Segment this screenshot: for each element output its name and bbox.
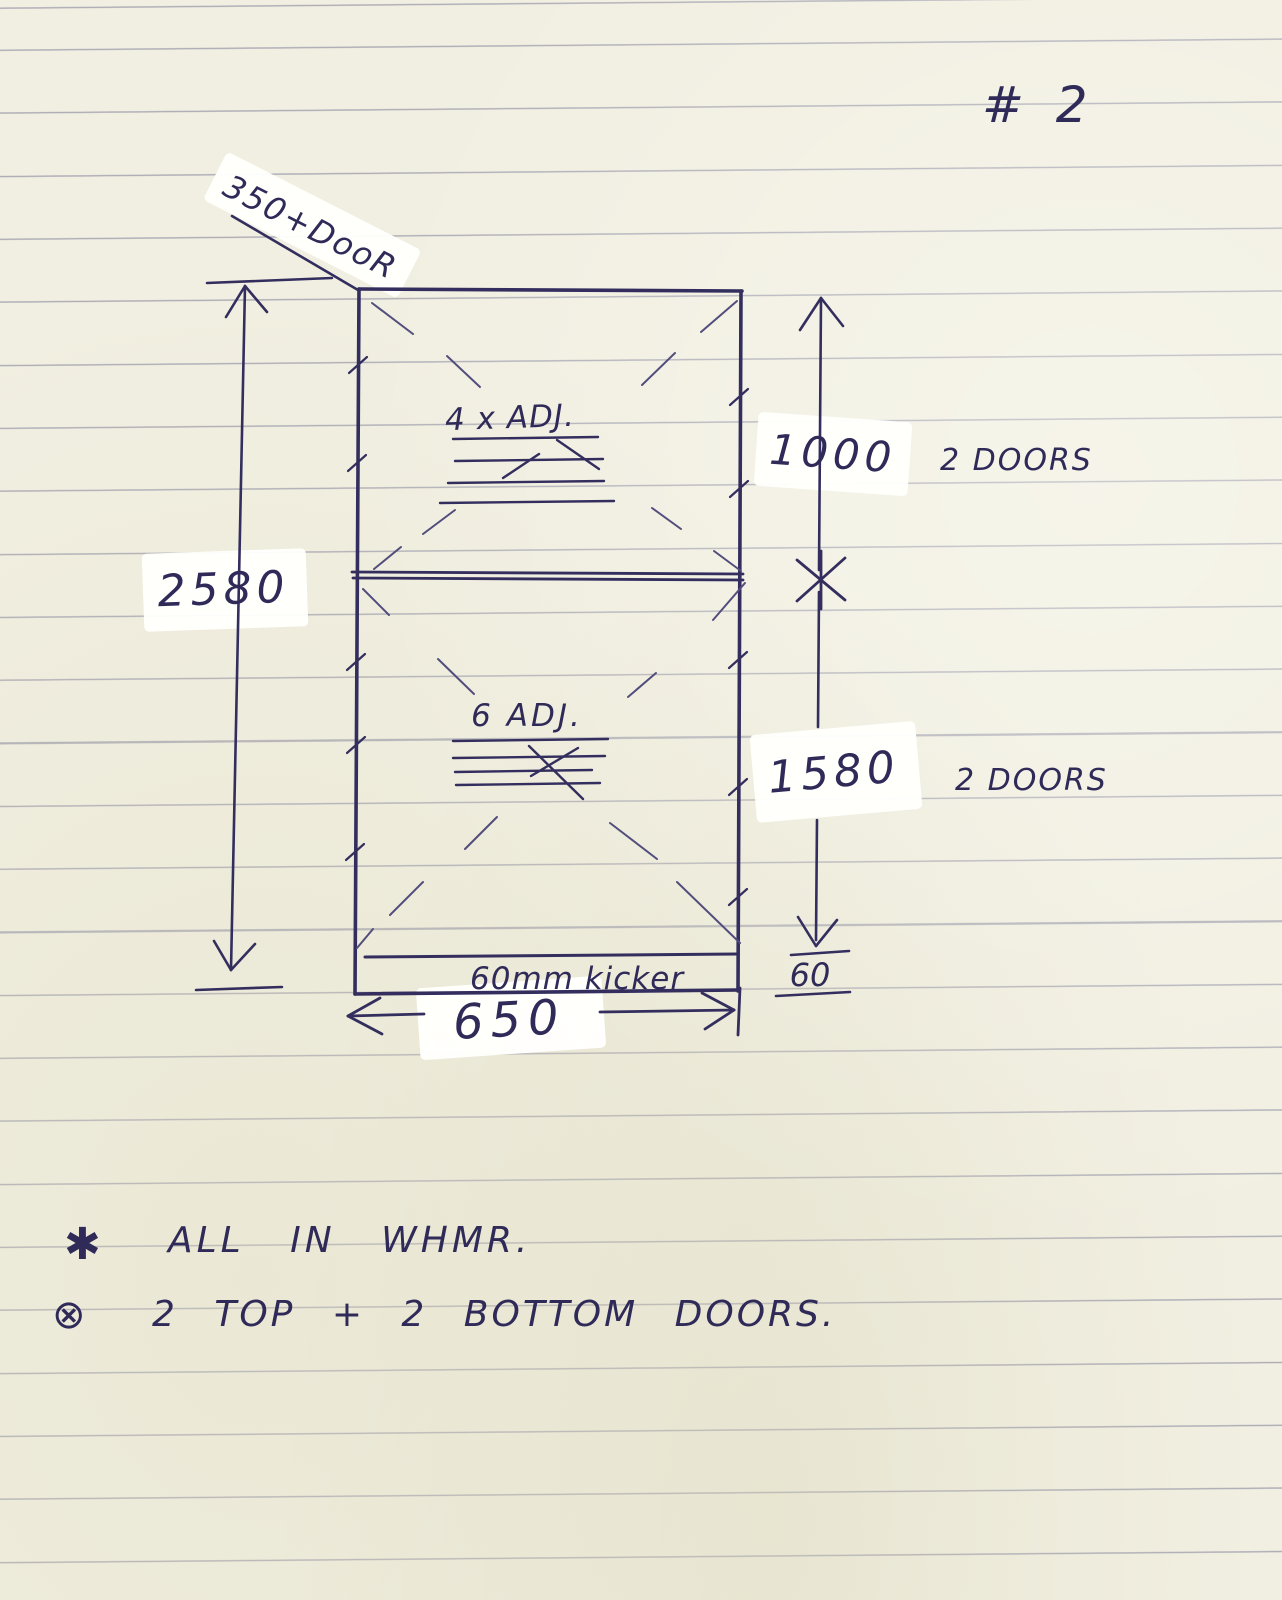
overall-height-dimension-line xyxy=(196,278,332,990)
upper-height-label: 1000 xyxy=(768,425,898,483)
note-1-text: ALL IN WHMR. xyxy=(166,1220,531,1261)
kicker-height-label: 60 xyxy=(790,956,831,994)
lower-door-diagonals xyxy=(357,583,745,948)
upper-doors-label: 2 DOORS xyxy=(940,443,1093,478)
cabinet-top-edge xyxy=(359,289,742,291)
overall-height-label: 2580 xyxy=(157,562,291,618)
note-2-text: 2 TOP + 2 BOTTOM DOORS. xyxy=(152,1294,836,1335)
page-number: # 2 xyxy=(982,76,1096,134)
lower-shelf-lines xyxy=(453,739,608,799)
notes: ✱ ALL IN WHMR. ⊗ 2 TOP + 2 BOTTOM DOORS. xyxy=(52,1219,836,1338)
middle-divider xyxy=(352,572,743,580)
upper-door-diagonals xyxy=(372,301,741,571)
cabinet-left-edge xyxy=(355,289,359,994)
width-label: 650 xyxy=(452,989,567,1051)
note-2-crossed-circle-icon: ⊗ xyxy=(52,1292,86,1338)
notebook-page: # 2 350+DooR 2580 4 x ADJ. 1000 2 DOORS … xyxy=(0,0,1282,1600)
upper-shelves-label: 4 x ADJ. xyxy=(444,398,575,439)
lower-shelves-label: 6 ADJ. xyxy=(471,698,583,734)
edge-tick-marks xyxy=(346,357,748,905)
asterisk-mark xyxy=(797,551,845,609)
note-1-star-icon: ✱ xyxy=(64,1219,101,1270)
cabinet-sketch: # 2 350+DooR 2580 4 x ADJ. 1000 2 DOORS … xyxy=(0,0,1282,1600)
upper-shelf-lines xyxy=(440,437,614,503)
lower-doors-label: 2 DOORS xyxy=(955,763,1108,798)
kicker-line xyxy=(365,954,737,957)
